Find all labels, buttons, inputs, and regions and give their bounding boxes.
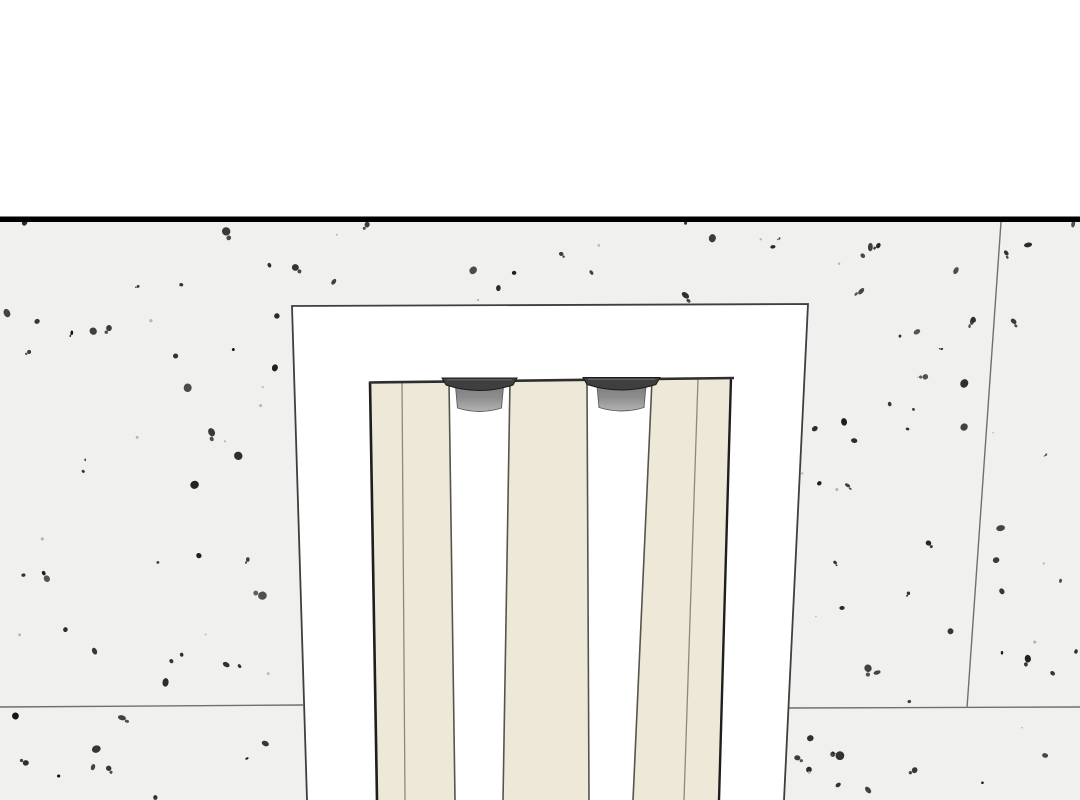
wall-seam-2 <box>786 707 1080 708</box>
divider-line <box>0 217 1080 223</box>
illustration-stage <box>0 0 1080 800</box>
panel-middle <box>503 380 589 800</box>
ceiling-white-area <box>0 0 1080 217</box>
panel-left <box>370 381 455 800</box>
cream-panel-group <box>369 378 734 800</box>
ceiling-wall-divider-line <box>0 217 1080 223</box>
scene-svg <box>0 0 1080 800</box>
ceiling-surface <box>0 0 1080 217</box>
